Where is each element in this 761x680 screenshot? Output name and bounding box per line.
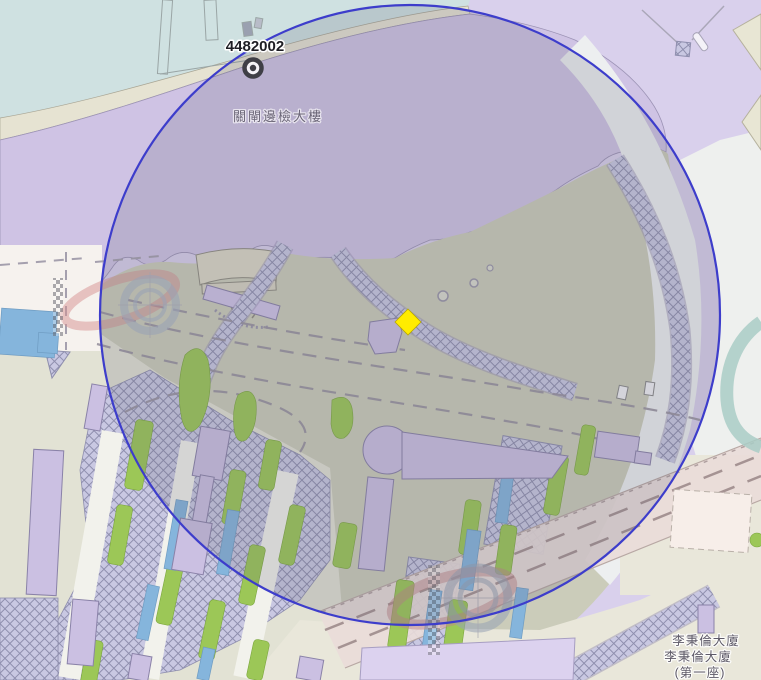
station-marker[interactable] xyxy=(243,58,264,79)
svg-text:(第一座): (第一座) xyxy=(675,665,726,680)
map-canvas[interactable]: 4482002 關閘邊檢大樓 李秉倫大廈 李秉倫大廈 (第一座) xyxy=(0,0,761,680)
svg-text:李秉倫大廈: 李秉倫大廈 xyxy=(664,649,732,664)
station-label: 4482002 xyxy=(226,38,284,55)
checker-strip xyxy=(53,278,63,336)
green-dot xyxy=(750,533,761,547)
area-label: 關閘邊檢大樓 xyxy=(233,109,323,124)
parking-lot xyxy=(670,489,752,552)
svg-text:李秉倫大廈: 李秉倫大廈 xyxy=(672,633,740,648)
